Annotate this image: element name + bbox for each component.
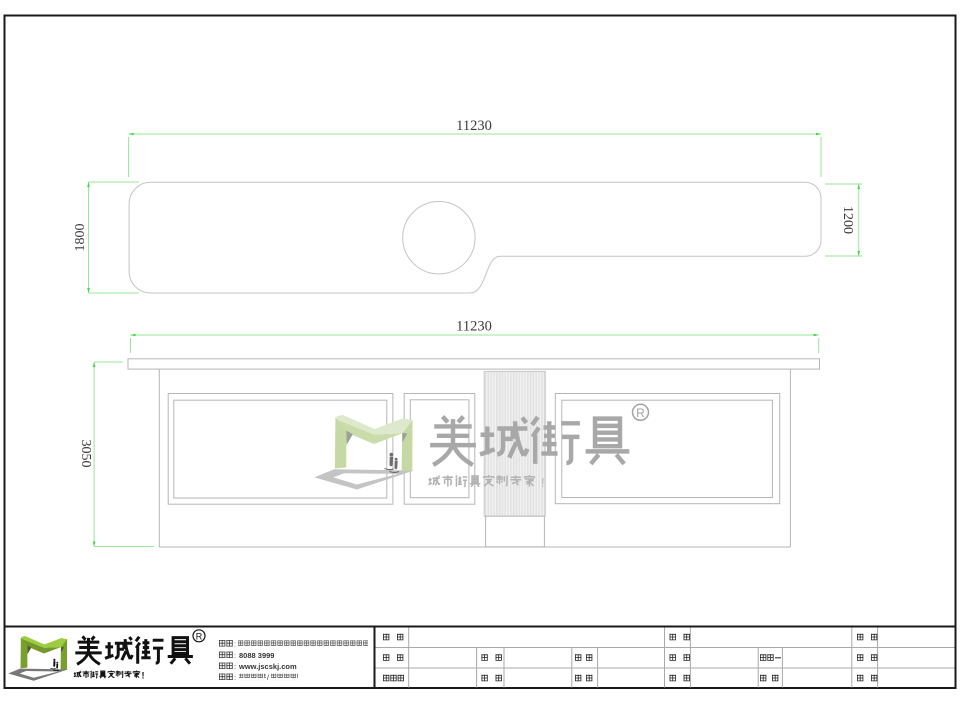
svg-text:R: R bbox=[636, 406, 645, 420]
svg-text:3050: 3050 bbox=[78, 440, 93, 468]
svg-text:/: / bbox=[267, 675, 269, 682]
svg-text:www.jscskj.com: www.jscskj.com bbox=[238, 662, 297, 671]
svg-text::: : bbox=[234, 653, 236, 660]
svg-text:11230: 11230 bbox=[456, 319, 492, 335]
svg-text:1800: 1800 bbox=[73, 224, 88, 252]
svg-text::: : bbox=[234, 664, 236, 671]
svg-text:11230: 11230 bbox=[456, 118, 492, 134]
svg-text::: : bbox=[234, 642, 236, 649]
svg-text:8088 3999: 8088 3999 bbox=[239, 651, 274, 660]
svg-text:R: R bbox=[196, 632, 203, 642]
svg-text:1200: 1200 bbox=[840, 206, 855, 234]
svg-text:!: ! bbox=[142, 671, 145, 681]
svg-text::: : bbox=[234, 675, 236, 682]
svg-text:!: ! bbox=[541, 475, 545, 490]
